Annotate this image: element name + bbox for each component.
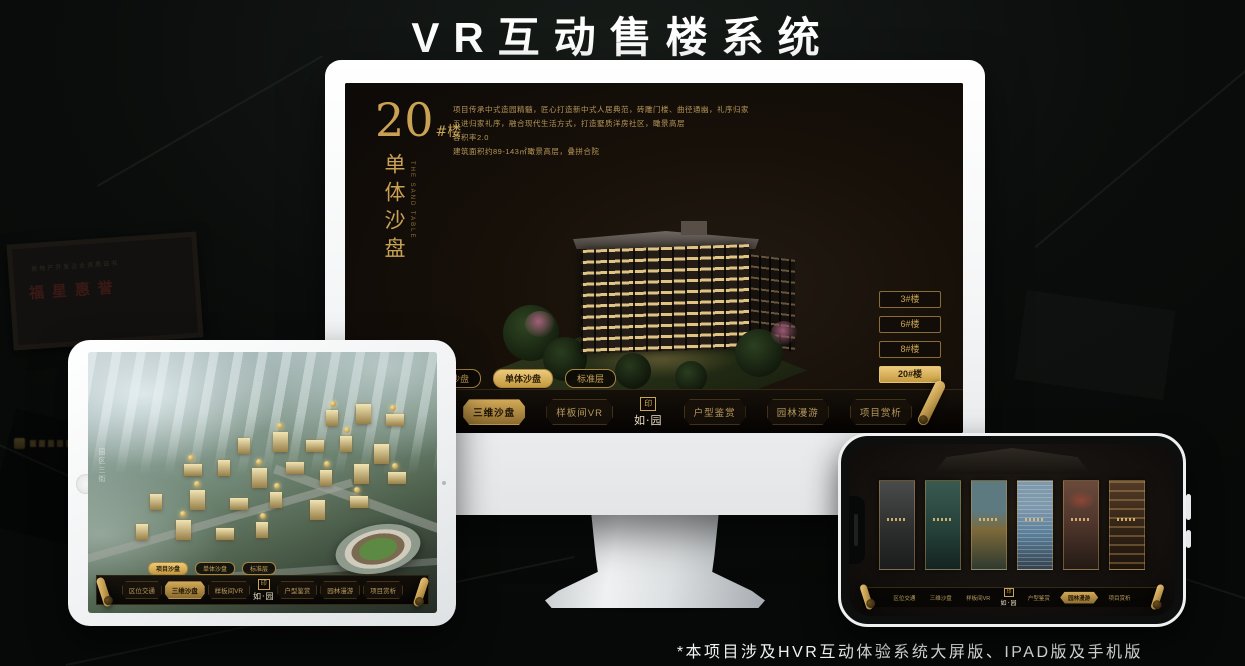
building-number-badge[interactable] [354,487,360,493]
brand-logo: 印 如·园 [1001,588,1018,607]
nav-item-showroom-vr[interactable]: 样板间VR [208,581,251,599]
panel-caption-shape [887,518,907,521]
description-line: 容积率2.0 [453,131,793,145]
road-label: 园区三街 [96,448,106,484]
poster-canvas: 房地产开发企业资质证书 福星惠誉 VR互动售楼系统 20#楼 单体沙盘 THE … [0,0,1245,666]
scene-panel[interactable] [879,480,915,570]
floor-button-8[interactable]: 8#楼 [879,341,941,358]
nav-item-project-gallery[interactable]: 项目赏析 [850,399,912,425]
panel-caption-shape [1025,518,1045,521]
phone-screen: 区位交通 三维沙盘 样板间VR 印 如·园 户型鉴赏 园林漫游 项目赏析 [849,444,1175,616]
brand-logo-text: 如·园 [1001,598,1018,607]
building-number-badge[interactable] [180,511,186,517]
nav-item-garden-tour[interactable]: 园林漫游 [320,581,360,599]
building-number-badge[interactable] [344,427,350,433]
panel-caption-shape [1071,518,1091,521]
lit-building [238,438,250,454]
ipad-sub-tabs: 项目沙盘 单体沙盘 标准层 [148,562,276,575]
scene-panel[interactable] [1109,480,1145,570]
nav-item-garden-tour[interactable]: 园林漫游 [1060,592,1098,604]
nav-item-location[interactable]: 区位交通 [889,592,919,604]
scene-panel-gallery [871,480,1153,568]
phone-side-button[interactable] [1186,530,1191,548]
lit-building [356,404,371,424]
section-title-english: THE SAND TABLE [409,161,415,239]
project-description: 项目传承中式造园精髓，匠心打造新中式人居典范，砖雕门楼、曲径通幽，礼序归家 五进… [453,103,793,159]
lit-building [136,524,148,540]
description-line: 五进归家礼序，融合现代生活方式，打造墅质洋房社区，瞰景高层 [453,117,793,131]
description-line: 建筑面积约89-143㎡瞰景高层，叠拼合院 [453,145,793,159]
lit-building [286,462,304,474]
nav-item-3d-sandbox[interactable]: 三维沙盘 [165,581,205,599]
ipad-nav-bar: 区位交通 三维沙盘 样板间VR 印 如·园 户型鉴赏 园林漫游 项目赏析 [96,575,429,605]
pergola-silhouette [934,448,1090,474]
ipad-screen: 园区三街 项目沙盘 单体沙盘 标准层 区位交通 三维沙盘 样板间VR 印 如·园… [88,352,437,613]
page-title: VR互动售楼系统 [0,4,1245,65]
blossom-tree-shape [771,321,797,345]
map-block [1014,290,1175,400]
brand-logo-text: 如·园 [634,412,663,428]
nav-item-project-gallery[interactable]: 项目赏析 [1105,592,1135,604]
map-road-line [97,55,323,187]
lit-building [230,498,248,510]
lit-building [374,444,389,464]
lit-building [310,500,325,520]
brand-mark-icon [14,438,25,449]
lit-building [326,410,338,426]
building-number-badge[interactable] [390,405,396,411]
scene-panel[interactable] [925,480,961,570]
building-number-title: 20#楼 [375,97,461,143]
nav-item-showroom-vr[interactable]: 样板间VR [962,592,994,604]
nav-item-unit-plans[interactable]: 户型鉴赏 [277,581,317,599]
brand-logo: 印 如·园 [634,397,663,428]
building-number-badge[interactable] [188,455,194,461]
building-number-badge[interactable] [277,423,283,429]
building-number-badge[interactable] [324,461,330,467]
building-number-badge[interactable] [194,481,200,487]
seal-icon: 印 [1004,588,1014,597]
tree-shape [615,353,651,389]
nav-item-project-gallery[interactable]: 项目赏析 [363,581,403,599]
building-number-badge[interactable] [330,401,336,407]
panel-caption-shape [979,518,999,521]
building-number-badge[interactable] [260,513,266,519]
phone-nav-bar: 区位交通 三维沙盘 样板间VR 印 如·园 户型鉴赏 园林漫游 项目赏析 [863,587,1161,607]
tab-single-sandbox[interactable]: 单体沙盘 [195,562,235,575]
building-facade [581,244,749,354]
tab-standard-floor[interactable]: 标准层 [242,562,276,575]
tab-standard-floor[interactable]: 标准层 [565,369,616,388]
plaque-subtext: 房地产开发企业资质证书 [31,258,119,273]
background-plaque: 房地产开发企业资质证书 福星惠誉 [7,232,204,351]
floor-button-3[interactable]: 3#楼 [879,291,941,308]
lit-building [256,522,268,538]
floor-selector: 3#楼 6#楼 8#楼 20#楼 [879,291,941,391]
nav-item-unit-plans[interactable]: 户型鉴赏 [684,399,746,425]
building-number-badge[interactable] [392,463,398,469]
lit-building [184,464,202,476]
map-road-line [1034,54,1245,248]
lit-building [176,520,191,540]
lit-building [150,494,162,510]
seal-icon: 印 [258,579,270,590]
roof-tower [681,221,707,235]
brand-logo: 印 如·园 [253,579,275,602]
nav-item-3d-sandbox[interactable]: 三维沙盘 [463,399,525,425]
tab-project-sandbox[interactable]: 项目沙盘 [148,562,188,575]
lit-building [320,470,332,486]
lit-building [350,496,368,508]
scene-panel[interactable] [1017,480,1053,570]
blossom-tree-shape [525,311,555,337]
seal-icon: 印 [640,397,656,411]
ipad-camera-icon [442,481,446,485]
floor-button-20[interactable]: 20#楼 [879,366,941,383]
scene-panel[interactable] [971,480,1007,570]
brand-logo-text: 如·园 [253,591,275,602]
description-line: 项目传承中式造园精髓，匠心打造新中式人居典范，砖雕门楼、曲径通幽，礼序归家 [453,103,793,117]
phone-mockup: 区位交通 三维沙盘 样板间VR 印 如·园 户型鉴赏 园林漫游 项目赏析 [838,433,1186,627]
building-number-badge[interactable] [274,483,280,489]
lit-building [340,436,352,452]
building-number-badge[interactable] [256,459,262,465]
panel-caption-shape [933,518,953,521]
plaque-text: 福星惠誉 [28,276,121,303]
floor-button-6[interactable]: 6#楼 [879,316,941,333]
lit-building [270,492,282,508]
phone-side-button[interactable] [1186,494,1191,520]
lit-building [252,468,267,488]
nav-item-3d-sandbox[interactable]: 三维沙盘 [926,592,956,604]
lit-building [218,460,230,476]
lit-building [354,464,369,484]
footnote-text: *本项目涉及HVR互动体验系统大屏版、IPAD版及手机版 [677,638,1143,662]
section-title-vertical: 单体沙盘 [379,153,409,265]
lit-building [386,414,404,426]
building-number: 20 [375,93,434,147]
tab-single-sandbox[interactable]: 单体沙盘 [493,369,553,388]
panel-caption-shape [1117,518,1137,521]
phone-speaker-icon [854,514,858,546]
nav-item-garden-tour[interactable]: 园林漫游 [767,399,829,425]
lit-building [306,440,324,452]
nav-item-location[interactable]: 区位交通 [122,581,162,599]
nav-item-showroom-vr[interactable]: 样板间VR [546,399,613,425]
ipad-mockup: 园区三街 项目沙盘 单体沙盘 标准层 区位交通 三维沙盘 样板间VR 印 如·园… [68,340,456,626]
phone-notch [849,496,865,564]
scene-panel[interactable] [1063,480,1099,570]
lit-building [388,472,406,484]
lit-building [216,528,234,540]
nav-item-unit-plans[interactable]: 户型鉴赏 [1024,592,1054,604]
lit-building [190,490,205,510]
lit-building [273,432,288,452]
